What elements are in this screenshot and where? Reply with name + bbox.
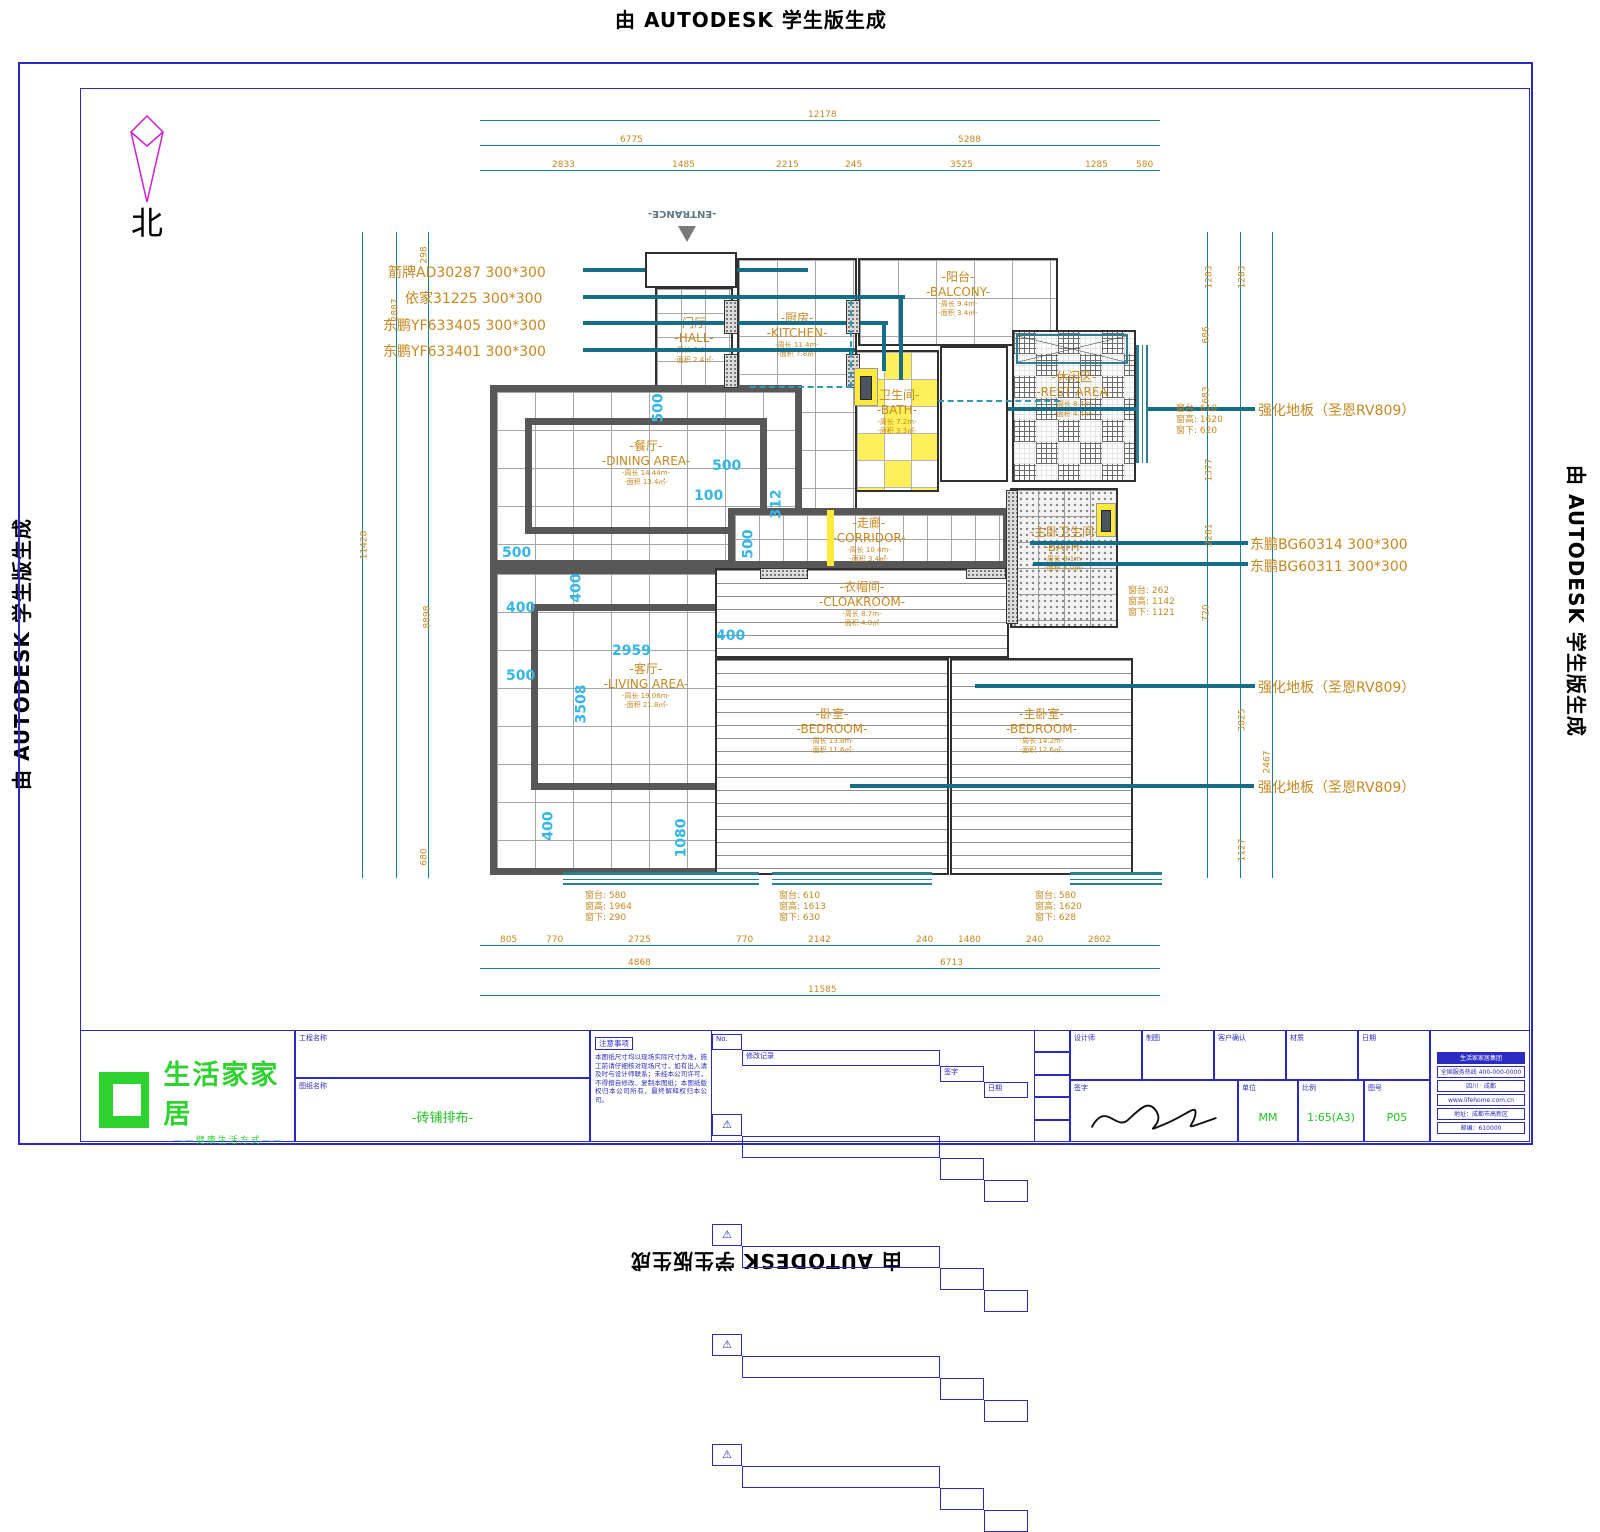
room-label-text: -REST AREA- [1014, 385, 1134, 400]
label-dim: 240 [916, 935, 933, 945]
window-annotation-2: 窗台: 610窗高: 1613窗下: 630 [779, 891, 826, 924]
pier [760, 568, 808, 579]
tile-spec-5: 东鹏BG60314 300*300 [1250, 534, 1408, 554]
label-dim: 6713 [940, 958, 963, 968]
personnel-label: 单位 [1242, 1083, 1256, 1093]
tile-spec-2: 依家31225 300*300 [405, 288, 542, 308]
label-dim: 1283 [1237, 266, 1247, 289]
ystrip [827, 510, 834, 566]
room-hall: -门厅--HALL--周长 8.4m--面积 2.4㎡- [655, 287, 733, 389]
warning-triangle-icon: ⚠ [713, 1115, 741, 1135]
room-label-text: -卧室- [717, 707, 947, 722]
signature-cell: 签字 [1070, 1080, 1238, 1142]
window-annotation-line: 窗台: 610 [779, 891, 826, 902]
win [772, 872, 932, 885]
room-label-text: -周长 8.7m- [717, 610, 1007, 619]
stamp-line-2: 全国服务热线 400-000-0000 [1437, 1066, 1525, 1078]
revision-table: No.修改记录签字日期⚠⚠⚠⚠ [712, 1034, 1034, 1138]
pier [724, 300, 738, 334]
stamp-line-3: 四川 · 成都 [1437, 1080, 1525, 1092]
logo-icon [99, 1072, 149, 1128]
personnel-value: P05 [1365, 1111, 1429, 1124]
drawing-name-label: 图纸名称 [299, 1081, 327, 1091]
revision-cell: ⚠ [712, 1444, 742, 1466]
room-label-text: -休闲区- [1014, 370, 1134, 385]
personnel-value-cell: 比例1:65(A3) [1298, 1080, 1364, 1142]
room-label-text: -BEDROOM- [952, 722, 1131, 737]
room-label: -主卧室--BEDROOM--周长 14.2m--面积 12.6㎡- [952, 707, 1131, 755]
room-label-text: -面积 4.0㎡- [717, 619, 1007, 628]
window-annotation-line: 窗下: 630 [779, 913, 826, 924]
narrow-cell [1034, 1052, 1070, 1074]
personnel-cell-3: 材质 [1286, 1030, 1358, 1080]
cad-sheet: { "watermark": {"text": "由 AUTODESK 学生版生… [0, 0, 1600, 1280]
revision-cell [984, 1510, 1028, 1532]
logo-cell: 生活家家居 ——健康生活方式—— [80, 1030, 295, 1142]
window-annotation-line: 窗下: 1121 [1128, 608, 1175, 619]
pier [1006, 490, 1018, 624]
label-dim: 11428 [359, 531, 369, 560]
room-master-bedroom: -主卧室--BEDROOM--周长 14.2m--面积 12.6㎡- [950, 658, 1133, 875]
label-dim: 2467 [1262, 751, 1272, 774]
window-annotation-line: 窗高: 1964 [585, 902, 632, 913]
dl-h [480, 170, 1160, 171]
label-dim: 683 [1202, 386, 1212, 403]
stamp-line-6: 邮编：610000 [1437, 1122, 1525, 1134]
floor-spec-2: 强化地板（圣恩RV809） [1258, 677, 1415, 697]
window-annotation-line: 窗台: 610 [1176, 404, 1223, 415]
label-dim: 245 [845, 160, 862, 170]
label-dim: 4868 [628, 958, 651, 968]
ldv [882, 321, 886, 371]
personnel-cell-0: 设计师 [1070, 1030, 1142, 1080]
label-dim: 298 [420, 246, 430, 263]
window-annotation-line: 窗下: 628 [1035, 913, 1082, 924]
label-dim: 2887 [390, 299, 400, 322]
room-label-text: -面积 11.6㎡- [717, 746, 947, 755]
notes-cell: 注意事项 本图纸尺寸均以现场实际尺寸为准，施工前请仔细核对现场尺寸，如有出入请及… [590, 1030, 712, 1142]
narrow-cell [1034, 1075, 1070, 1097]
label-cy: 500 [502, 545, 531, 561]
pier [724, 354, 738, 388]
label-cy: 500 [712, 458, 741, 474]
personnel-grid: 设计师制图客户确认材质日期签字单位MM比例1:65(A3)图号P05 [1070, 1030, 1430, 1142]
personnel-cell-2: 客户确认 [1214, 1030, 1286, 1080]
revision-cell [742, 1466, 940, 1488]
label-cy: 1080 [673, 819, 689, 858]
ld [1033, 562, 1248, 566]
xbox [1016, 334, 1128, 364]
tile-spec-4: 东鹏YF633401 300*300 [383, 341, 546, 361]
label-dim: 720 [1202, 604, 1212, 621]
drawing-name-cell: 图纸名称 -砖铺排布- [295, 1078, 590, 1142]
label-cy: 500 [651, 393, 667, 422]
room-label-text: -面积 3.4㎡- [860, 309, 1056, 318]
room-label-text: -周长 13.8m- [717, 737, 947, 746]
room-label-text: -周长 9.4m- [860, 300, 1056, 309]
signature [1079, 1091, 1229, 1139]
revision-cell [984, 1400, 1028, 1422]
window-annotation-line: 窗台: 262 [1128, 586, 1175, 597]
label-cy: 400 [716, 628, 745, 644]
floor-spec-1: 强化地板（圣恩RV809） [1258, 400, 1415, 420]
revision-cell: ⚠ [712, 1224, 742, 1246]
window-annotation-line: 窗高: 1620 [1035, 902, 1082, 913]
narrow-cell [1034, 1097, 1070, 1119]
personnel-label: 客户确认 [1218, 1033, 1246, 1043]
logo-tagline: ——健康生活方式—— [163, 1133, 294, 1146]
revision-cell: ⚠ [712, 1114, 742, 1136]
tile-spec-3: 东鹏YF633405 300*300 [383, 315, 546, 335]
window-annotation-line: 窗高: 1620 [1176, 415, 1223, 426]
label-cy: 400 [506, 600, 535, 616]
win [563, 872, 759, 885]
label-cy: 2959 [612, 643, 651, 659]
label-dim: 580 [1136, 160, 1153, 170]
label-cy: 400 [541, 811, 557, 840]
dk [1101, 510, 1111, 532]
room-cloakroom: -衣帽间--CLOAKROOM--周长 8.7m--面积 4.0㎡- [715, 568, 1009, 658]
window-annotation-line: 窗下: 620 [1176, 426, 1223, 437]
project-name-cell: 工程名称 [295, 1030, 590, 1078]
project-name-label: 工程名称 [299, 1033, 327, 1043]
f-plank [940, 346, 1008, 482]
dl-h [480, 145, 1160, 146]
label-dim: 2281 [1204, 524, 1214, 547]
room-label: -走廊--CORRIDOR--周长 10.4m--面积 3.4㎡- [735, 516, 1003, 564]
ld [850, 784, 1254, 788]
dl-v [1240, 232, 1241, 878]
window-annotation-line: 窗高: 1613 [779, 902, 826, 913]
window-annotation-line: 窗台: 580 [585, 891, 632, 902]
label-cy: 500 [506, 668, 535, 684]
dk [860, 376, 872, 400]
room-label-text: -CORRIDOR- [735, 531, 1003, 546]
room-label-text: -周长 14.2m- [952, 737, 1131, 746]
revision-cell: ⚠ [712, 1334, 742, 1356]
dl-h [480, 945, 1160, 946]
label-dim: 240 [1026, 935, 1043, 945]
window-annotation-line: 窗下: 290 [585, 913, 632, 924]
floor-spec-3: 强化地板（圣恩RV809） [1258, 777, 1415, 797]
ld [583, 295, 905, 299]
win [1070, 872, 1162, 885]
notes-body: 本图纸尺寸均以现场实际尺寸为准，施工前请仔细核对现场尺寸，如有出入请及时与设计师… [591, 1050, 711, 1107]
personnel-label: 制图 [1146, 1033, 1160, 1043]
dashbr [750, 300, 852, 388]
personnel-value-cell: 图号P05 [1364, 1080, 1430, 1142]
revision-cell [940, 1158, 984, 1180]
label-cy: 400 [569, 573, 585, 602]
narrow-column [1034, 1030, 1070, 1142]
room-label: -卧室--BEDROOM--周长 13.8m--面积 11.6㎡- [717, 707, 947, 755]
room-label-text: -主卧室- [952, 707, 1131, 722]
room-label: -衣帽间--CLOAKROOM--周长 8.7m--面积 4.0㎡- [717, 580, 1007, 628]
revision-header-0: No. [712, 1034, 742, 1050]
tile-spec-6: 东鹏BG60311 300*300 [1250, 556, 1408, 576]
personnel-label: 图号 [1368, 1083, 1382, 1093]
revision-cell [940, 1268, 984, 1290]
warning-triangle-icon: ⚠ [713, 1335, 741, 1355]
room-label-text: -HALL- [657, 331, 731, 346]
window-annotation-5: 窗台: 262窗高: 1142窗下: 1121 [1128, 586, 1175, 619]
label-dim: 5288 [958, 135, 981, 145]
room-label-text: -衣帽间- [717, 580, 1007, 595]
personnel-cell-4: 日期 [1358, 1030, 1430, 1080]
room-label: -休闲区--REST AREA--周长 8.4m--面积 4.4㎡- [1014, 370, 1134, 418]
tile-spec-1: 箭牌AD30287 300*300 [388, 262, 546, 282]
window-annotation-4: 窗台: 610窗高: 1620窗下: 620 [1176, 404, 1223, 437]
window-annotation-3: 窗台: 580窗高: 1620窗下: 628 [1035, 891, 1082, 924]
window-annotation-1: 窗台: 580窗高: 1964窗下: 290 [585, 891, 632, 924]
personnel-value: MM [1239, 1111, 1297, 1124]
warning-triangle-icon: ⚠ [713, 1225, 741, 1245]
label-dim: 770 [546, 935, 563, 945]
warning-triangle-icon: ⚠ [713, 1445, 741, 1465]
label-dim: 3525 [950, 160, 973, 170]
label-cy: 100 [694, 488, 723, 504]
ld [1030, 541, 1248, 545]
window-annotation-line: 窗高: 1142 [1128, 597, 1175, 608]
revision-cell [742, 1356, 940, 1378]
label-dim: 805 [500, 935, 517, 945]
label-dim: 680 [420, 848, 430, 865]
drawing-name: -砖铺排布- [296, 1107, 589, 1126]
revision-cell [940, 1488, 984, 1510]
pier [966, 568, 1006, 579]
dl-h [480, 968, 1160, 969]
room-label-text: -CLOAKROOM- [717, 595, 1007, 610]
room-label-text: -周长 10.4m- [735, 546, 1003, 555]
winv [1136, 345, 1148, 463]
ld [975, 684, 1255, 688]
label-dim: 2725 [628, 935, 651, 945]
revision-cell [742, 1246, 940, 1268]
logo-name: 生活家家居 [163, 1053, 294, 1131]
stamp-block: 生活家家居集团全国服务热线 400-000-0000四川 · 成都www.lif… [1430, 1030, 1530, 1142]
notes-header: 注意事项 [595, 1037, 633, 1050]
label-cy: 312 [769, 489, 785, 518]
personnel-value: 1:65(A3) [1299, 1111, 1363, 1124]
dl-h [480, 120, 1160, 121]
label-dim: 1377 [1204, 459, 1214, 482]
label-dim: 1480 [958, 935, 981, 945]
rb [645, 252, 737, 288]
stamp-line-4: www.lifehome.com.cn [1437, 1094, 1525, 1106]
revision-cell [742, 1136, 940, 1158]
label-dim: 2142 [808, 935, 831, 945]
room-label-text: -面积 3.4㎡- [735, 555, 1003, 564]
label-dim: 2215 [776, 160, 799, 170]
revision-cell [984, 1290, 1028, 1312]
label-cy: 500 [741, 529, 757, 558]
revision-cell [984, 1180, 1028, 1202]
label-dim: 11585 [808, 985, 837, 995]
room-inner-frame [531, 604, 741, 790]
revision-header-2: 签字 [940, 1066, 984, 1082]
room-label-text: -周长 7.2m- [857, 418, 937, 427]
revision-header-1: 修改记录 [742, 1050, 940, 1066]
label-dim: 3825 [1237, 709, 1247, 732]
revision-cell [940, 1378, 984, 1400]
narrow-cell [1034, 1030, 1070, 1052]
room-label-text: -阳台- [860, 270, 1056, 285]
window-annotation-line: 窗台: 580 [1035, 891, 1082, 902]
label-dim: 6775 [620, 135, 643, 145]
room-bedroom: -卧室--BEDROOM--周长 13.8m--面积 11.6㎡- [715, 658, 949, 875]
label-dim: 770 [736, 935, 753, 945]
personnel-value-cell: 单位MM [1238, 1080, 1298, 1142]
label-dim: 1283 [1204, 266, 1214, 289]
narrow-cell [1034, 1120, 1070, 1142]
personnel-label: 材质 [1290, 1033, 1304, 1043]
label-dim: 2833 [552, 160, 575, 170]
label-dim: 12178 [808, 110, 837, 120]
label-dim: 686 [1202, 326, 1212, 343]
personnel-label: 设计师 [1074, 1033, 1095, 1043]
label-dim: 1127 [1237, 839, 1247, 862]
dl-h [480, 995, 1160, 996]
room-label-text: -面积 12.6㎡- [952, 746, 1131, 755]
stamp-line-1: 生活家家居集团 [1437, 1052, 1525, 1064]
label-dim: 2802 [1088, 935, 1111, 945]
revision-header-3: 日期 [984, 1082, 1028, 1098]
stamp-line-5: 地址：成都市高新区 [1437, 1108, 1525, 1120]
personnel-label: 比例 [1302, 1083, 1316, 1093]
personnel-cell-1: 制图 [1142, 1030, 1214, 1080]
room-label-text: -面积 3.3㎡- [857, 427, 937, 436]
room-label-text: -面积 2.4㎡- [657, 356, 731, 365]
label-cy: 3508 [573, 685, 589, 724]
label-dim: 8898 [422, 606, 432, 629]
dashh [938, 400, 1060, 402]
personnel-label: 日期 [1362, 1033, 1376, 1043]
ldv [899, 295, 903, 380]
label-dim: 1485 [672, 160, 695, 170]
room-label-text: -BEDROOM- [717, 722, 947, 737]
label-dim: 1285 [1085, 160, 1108, 170]
title-block: 生活家家居 ——健康生活方式—— 工程名称 图纸名称 -砖铺排布- 注意事项 本… [80, 1030, 1530, 1142]
